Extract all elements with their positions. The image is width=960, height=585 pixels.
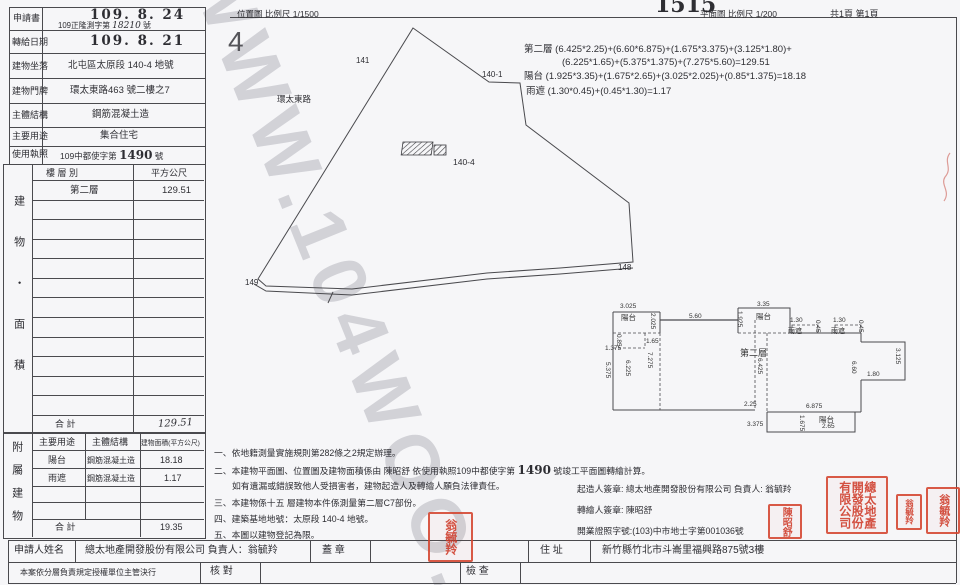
bottom-table-line bbox=[520, 562, 521, 583]
bottom-table-line bbox=[8, 540, 956, 541]
building-location: 北屯區太原段 140-4 地號 bbox=[68, 61, 174, 72]
form-line bbox=[9, 127, 205, 128]
bottom-table-line bbox=[590, 540, 591, 562]
address-label: 住 址 bbox=[540, 545, 563, 557]
lot-140-4-label: 140-4 bbox=[453, 158, 475, 168]
annex-row2-structure: 鋼筋混凝土造 bbox=[87, 474, 135, 483]
calc-floor-line1: 第二層 (6.425*2.25)+(6.60*6.875)+(1.675*3.3… bbox=[524, 45, 792, 56]
main-structure: 鋼筋混凝土造 bbox=[92, 110, 149, 121]
drafter-signature-line: 轉繪人簽章: 陳昭舒 bbox=[577, 505, 652, 515]
bottom-table-line bbox=[8, 540, 9, 583]
note-2-line1: 二、本建物平面圖、位置圖及建物面積係由 陳昭舒 依使用執照109中都使字第 14… bbox=[214, 464, 650, 478]
lot-141-label: 141 bbox=[356, 56, 369, 65]
calc-canopy-line: 雨遮 (1.30*0.45)+(0.45*1.30)=1.17 bbox=[526, 87, 671, 98]
table-line bbox=[32, 278, 204, 279]
col-floor-header: 樓 層 別 bbox=[46, 168, 78, 178]
bottom-table-line bbox=[75, 540, 76, 562]
form-label-application: 申請書 bbox=[13, 13, 40, 23]
form-line bbox=[9, 103, 205, 104]
address-value: 新竹縣竹北市斗崙里福興路875號3樓 bbox=[602, 545, 764, 557]
annex-row2-area: 1.17 bbox=[164, 473, 182, 483]
annex-total-label: 合 計 bbox=[55, 522, 76, 532]
person-seal-small: 翁毓羚 bbox=[896, 494, 922, 530]
lot-140-1-label: 140-1 bbox=[482, 70, 502, 79]
location-scale-label: 位置圖 比例尺 1/1500 bbox=[237, 10, 319, 20]
annex-col-use: 主要用途 bbox=[39, 437, 75, 447]
transfer-date: 109. 8. 21 bbox=[90, 34, 185, 50]
bottom-table-line bbox=[528, 540, 529, 562]
license-number-line: 開業證照字號:(103)中市地士字第001036號 bbox=[577, 526, 744, 536]
road-name-label: 環太東路 bbox=[277, 95, 311, 105]
table-line bbox=[32, 317, 204, 318]
calc-balcony-line: 陽台 (1.925*3.35)+(1.675*2.65)+(3.025*2.02… bbox=[524, 72, 806, 83]
annex-row2-use: 雨遮 bbox=[48, 473, 66, 483]
table-line bbox=[133, 164, 134, 432]
bottom-table-line bbox=[8, 562, 956, 563]
survey-document-page: WWW.104WOO.COM.TW 1515 位置圖 比例尺 1/1500 平面… bbox=[0, 0, 960, 585]
note-5: 五、本圖以建物登記為限。 bbox=[214, 530, 320, 540]
floor-plan-drawing: 3.025 陽台 2.025 0.85 1.65 1.375 5.375 6.2… bbox=[605, 300, 955, 440]
floor-row-area: 129.51 bbox=[162, 186, 191, 197]
inspect-label: 檢 查 bbox=[466, 566, 489, 578]
drafter-name-seal: 陳昭舒 bbox=[768, 504, 802, 539]
table-line bbox=[32, 297, 204, 298]
bottom-table-line bbox=[260, 562, 261, 583]
table-line bbox=[32, 432, 33, 537]
col-area-header: 平方公尺 bbox=[151, 168, 187, 178]
bottom-table-line bbox=[370, 540, 371, 562]
application-docno: 109正隆測字第 18210 號 bbox=[58, 21, 151, 31]
use-permit-stamped-no: 1490 bbox=[119, 148, 152, 162]
company-seal: 總太地產開發股份有限公司 bbox=[826, 476, 888, 534]
form-label-transfer-date: 轉給日期 bbox=[12, 37, 48, 47]
form-label-main-use: 主要用途 bbox=[12, 131, 48, 141]
annex-col-area: 建物面積(平方公尺) bbox=[141, 440, 200, 448]
page-count-label: 共1頁 第1頁 bbox=[830, 9, 879, 19]
delegation-note: 本案依分層負責規定授權單位主管決行 bbox=[20, 568, 156, 577]
area-total-value: 129.51 bbox=[158, 417, 194, 430]
use-permit-number: 109中都使字第 1490 號 bbox=[60, 149, 163, 163]
check-label: 核 對 bbox=[210, 566, 233, 578]
table-line bbox=[32, 200, 204, 201]
table-line bbox=[32, 356, 204, 357]
annex-side-label: 附屬建物 bbox=[10, 441, 23, 533]
main-use: 集合住宅 bbox=[100, 131, 138, 142]
note-4: 四、建築基地地號：太原段 140-4 地號。 bbox=[214, 514, 373, 524]
applicant-name-label: 申請人姓名 bbox=[14, 545, 64, 557]
application-docno-handwritten: 18210 bbox=[112, 21, 141, 31]
note-1: 一、依地籍測量實施規則第282條之2規定辦理。 bbox=[214, 448, 401, 458]
table-line bbox=[32, 519, 204, 520]
note-2-line2: 如有遺漏或錯誤致他人受損害者，建物起造人及轉繪人願負法律責任。 bbox=[232, 481, 505, 491]
area-total-label: 合 計 bbox=[55, 419, 76, 429]
floor-area-table bbox=[3, 164, 206, 434]
floor-row-name: 第二層 bbox=[70, 186, 99, 197]
form-line bbox=[9, 53, 205, 54]
table-line bbox=[32, 180, 204, 181]
seal-column-label: 蓋 章 bbox=[322, 545, 345, 557]
form-line bbox=[9, 146, 205, 147]
table-line bbox=[32, 450, 204, 451]
note-2-stamped-no: 1490 bbox=[518, 463, 551, 477]
table-line bbox=[32, 337, 204, 338]
bottom-table-line bbox=[8, 583, 956, 584]
table-line bbox=[32, 164, 33, 432]
bottom-table-line bbox=[200, 562, 201, 583]
lot-148-label: 148 bbox=[618, 263, 631, 272]
floor-area-side-label: 建物・面積 bbox=[12, 195, 25, 420]
annex-total-value: 19.35 bbox=[160, 522, 183, 532]
annex-row1-structure: 鋼筋混凝土造 bbox=[87, 456, 135, 465]
annex-col-structure: 主體結構 bbox=[92, 437, 128, 447]
lot-149-label: 149 bbox=[245, 278, 258, 287]
builder-signature-line: 起造人簽章: 總太地產開發股份有限公司 負責人: 翁毓羚 bbox=[577, 484, 792, 494]
table-line bbox=[32, 239, 204, 240]
annex-row1-area: 18.18 bbox=[160, 455, 183, 465]
table-line bbox=[85, 432, 86, 519]
person-seal-right: 翁毓羚 bbox=[926, 487, 960, 534]
applicant-name-value: 總太地產開發股份有限公司 負責人：翁毓羚 bbox=[85, 545, 278, 557]
form-line bbox=[9, 78, 205, 79]
table-line bbox=[32, 219, 204, 220]
calc-floor-line2: (6.225*1.65)+(5.375*1.375)+(7.275*5.60)=… bbox=[562, 58, 770, 69]
annex-row1-use: 陽台 bbox=[48, 455, 66, 465]
note-3: 三、本建物係十五 層建物本件係測量第二層C7部份。 bbox=[214, 498, 421, 508]
table-line bbox=[32, 395, 204, 396]
table-line bbox=[32, 468, 204, 469]
table-line bbox=[32, 415, 204, 416]
floor-plan-lines bbox=[605, 300, 955, 440]
table-line bbox=[32, 258, 204, 259]
handwritten-red-mark bbox=[938, 150, 958, 205]
bottom-table-line bbox=[310, 540, 311, 562]
form-label-use-permit: 使用執照 bbox=[12, 149, 48, 159]
table-line bbox=[32, 502, 204, 503]
plan-scale-label: 平面圖 比例尺 1/200 bbox=[700, 10, 777, 20]
table-line bbox=[32, 376, 204, 377]
form-label-door-plate: 建物門牌 bbox=[12, 86, 48, 96]
door-plate: 環太東路463 號二樓之7 bbox=[70, 86, 170, 97]
bottom-table-line bbox=[460, 562, 461, 583]
form-label-structure: 主體結構 bbox=[12, 110, 48, 120]
table-line bbox=[32, 486, 204, 487]
person-seal-center: 翁毓羚 bbox=[428, 512, 473, 562]
form-label-building-location: 建物坐落 bbox=[12, 61, 48, 71]
